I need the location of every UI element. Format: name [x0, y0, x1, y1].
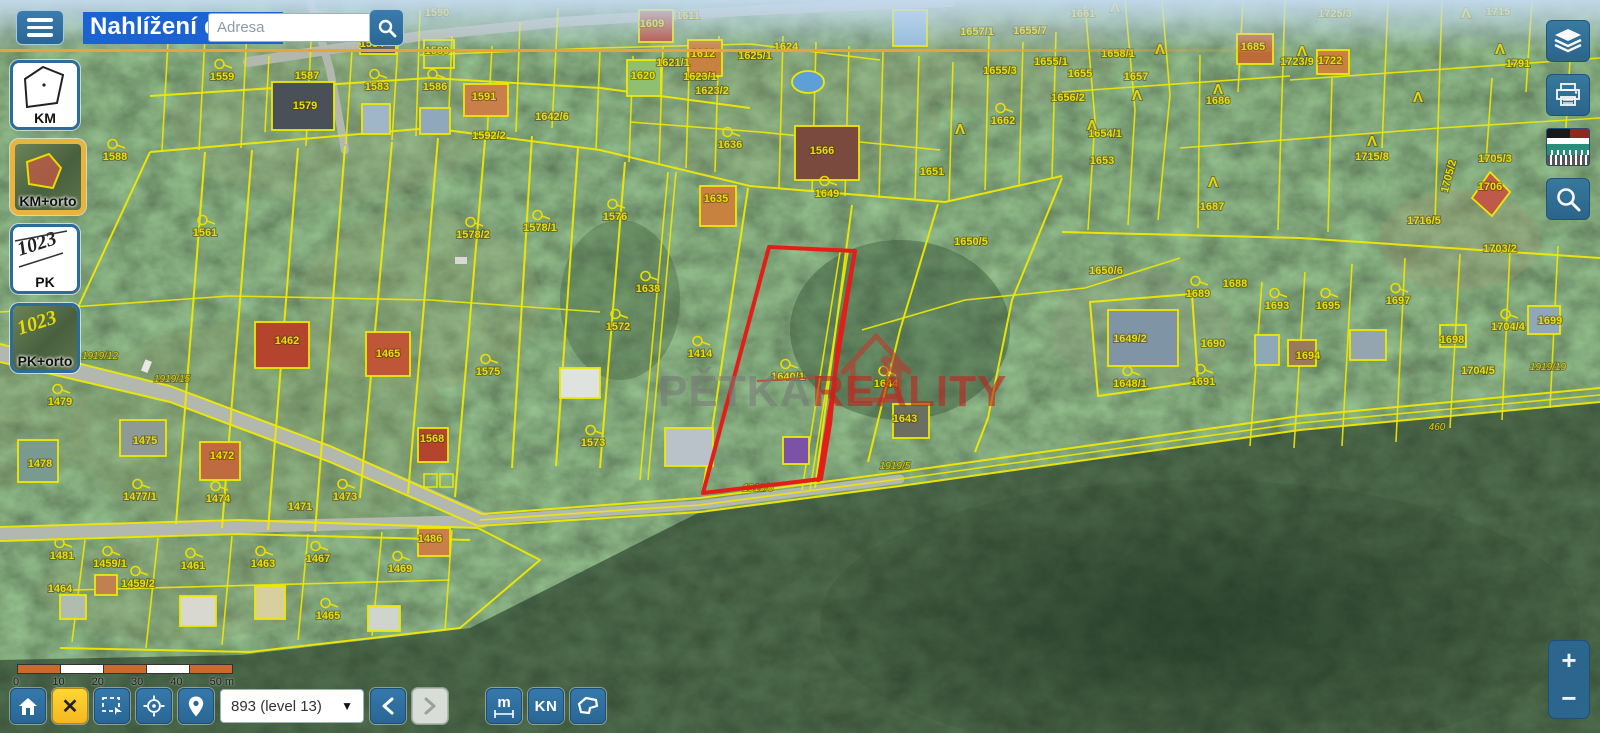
- svg-text:PĚTKAREALITY: PĚTKAREALITY: [658, 366, 1007, 416]
- parcel-label: 1576: [603, 211, 627, 223]
- pk-sketch-lines: [13, 227, 71, 273]
- zoom-level-select[interactable]: 893 (level 13) ▼: [220, 689, 364, 723]
- parcel-label: 1559: [210, 71, 234, 83]
- header-divider: [0, 49, 1600, 52]
- parcel-label: 1474: [206, 493, 231, 505]
- parcel-label: Λ: [1413, 89, 1423, 106]
- parcel-label: 1693: [1265, 300, 1289, 312]
- legend-stripe: [1547, 129, 1589, 138]
- map-canvas[interactable]: 1559158715791584158315901589158615911592…: [0, 0, 1600, 733]
- print-button[interactable]: [1546, 74, 1590, 116]
- parcel-label: 1656/2: [1051, 92, 1085, 104]
- polygon-area-icon: [577, 696, 599, 716]
- parcel-label: 1471: [288, 501, 312, 513]
- parcel-label: 1695: [1316, 300, 1340, 312]
- parcel-label: 1578/2: [456, 229, 490, 241]
- parcel-label: 1919/19: [1530, 362, 1567, 373]
- parcel-label: 1698: [1440, 334, 1464, 346]
- parcel-label: 1636: [718, 139, 742, 151]
- select-area-button[interactable]: [94, 688, 130, 724]
- parcel-label: 1650/5: [954, 236, 988, 248]
- sketch-area-button[interactable]: [570, 688, 606, 724]
- parcel-label: 1623/2: [695, 85, 729, 97]
- kn-info-button[interactable]: KN: [528, 688, 564, 724]
- home-icon: [18, 697, 38, 716]
- parcel-label: 460: [1429, 422, 1446, 433]
- search-icon: [377, 18, 397, 38]
- parcel-label: 1655: [1068, 68, 1092, 80]
- parcel-label: 1591: [472, 91, 496, 103]
- layer-button-pk[interactable]: 1023 PK: [10, 224, 80, 294]
- search-button[interactable]: [369, 9, 404, 46]
- layers-button[interactable]: [1546, 20, 1590, 62]
- map-pin-icon: [188, 696, 204, 717]
- gps-target-icon: [143, 695, 165, 717]
- parcel-label: 1704/4: [1491, 321, 1526, 333]
- parcel-label: 1642/6: [535, 111, 569, 123]
- parcel-label: 1706: [1478, 181, 1502, 193]
- parcel-label: 1566: [810, 145, 834, 157]
- parcel-label: 1459/1: [93, 558, 127, 570]
- parcel-label: 1465: [316, 610, 340, 622]
- parcel-label: Λ: [1208, 174, 1218, 191]
- locate-button[interactable]: [136, 688, 172, 724]
- parcel-label: Λ: [955, 121, 965, 138]
- legend-button[interactable]: [1546, 128, 1590, 166]
- parcel-label: 1573: [581, 437, 605, 449]
- parcel-label: 1473: [333, 491, 357, 503]
- parcel-label: 1697: [1386, 295, 1410, 307]
- zoom-level-value: 893 (level 13): [231, 698, 322, 715]
- clear-selection-button[interactable]: ✕: [52, 688, 88, 724]
- parcel-label: 1638: [636, 283, 660, 295]
- parcel-label: 1689: [1186, 288, 1210, 300]
- parcel-label: 1414: [688, 348, 713, 360]
- bottom-toolbar: ✕ 893 (level 13) ▼: [10, 688, 606, 724]
- parcel-label: 1464: [48, 583, 73, 595]
- layer-switcher: KM KM+orto 1023 PK 1023 PK+orto: [10, 60, 86, 373]
- parcel-label: 1691: [1191, 376, 1215, 388]
- parcel-label: 1469: [388, 563, 412, 575]
- parcel-label: 1655/1: [1034, 56, 1068, 68]
- parcel-label: 1649/2: [1113, 333, 1147, 345]
- parcel-label: 1623/1: [683, 71, 717, 83]
- cadastral-sketch-icon: [13, 63, 71, 109]
- map-search-button[interactable]: [1546, 178, 1590, 220]
- parcel-label: 1568: [420, 433, 444, 445]
- layer-button-pk-orto[interactable]: 1023 PK+orto: [10, 303, 80, 373]
- parcel-label: 1561: [193, 227, 217, 239]
- legend-stripe: [1547, 155, 1589, 165]
- parcel-label: 1705/3: [1478, 153, 1512, 165]
- parcel-label: 1620: [631, 70, 655, 82]
- parcel-label: 1657: [1124, 71, 1148, 83]
- parcel-label: 1715/8: [1355, 151, 1389, 163]
- scalebar-labels: 01020304050 m: [13, 676, 249, 688]
- parcel-label: 1463: [251, 558, 275, 570]
- parcel-label: 1459/2: [121, 578, 155, 590]
- parcel-label: 1486: [418, 533, 442, 545]
- selected-building: [783, 437, 809, 464]
- parcel-label: 1716/5: [1407, 215, 1441, 227]
- home-button[interactable]: [10, 688, 46, 724]
- parcel-label: 1462: [275, 335, 299, 347]
- parcel-label: 1687: [1200, 201, 1224, 213]
- address-search-input[interactable]: [208, 13, 382, 42]
- parcel-label: 1649: [815, 188, 839, 200]
- parcel-label: 1621/1: [656, 57, 690, 69]
- parcel-label: Λ: [1087, 117, 1097, 134]
- parcel-label: 1588: [103, 151, 127, 163]
- parcel-label: 1465: [376, 348, 400, 360]
- parcel-label: 1650/6: [1089, 265, 1123, 277]
- chevron-down-icon: ▼: [341, 699, 353, 713]
- menu-button[interactable]: [16, 10, 64, 45]
- layer-button-km-orto[interactable]: KM+orto: [10, 139, 86, 215]
- measure-button[interactable]: m: [486, 688, 522, 724]
- magnifier-icon: [1555, 186, 1581, 212]
- parcel-label: 1461: [181, 560, 205, 572]
- parcel-label: 1583: [365, 81, 389, 93]
- chevron-right-icon: [423, 697, 437, 715]
- parcel-label: 1722: [1318, 55, 1342, 67]
- select-rectangle-icon: [101, 696, 123, 716]
- zoom-in-button[interactable]: +: [1549, 641, 1589, 680]
- parcel-label: 1467: [306, 553, 330, 565]
- parcel-label: 1481: [50, 550, 74, 562]
- parcel-label: 1635: [704, 193, 728, 205]
- parcel-label: 1699: [1538, 315, 1562, 327]
- parcel-label: 1919/15: [154, 374, 191, 385]
- parcel-label: 1479: [48, 396, 72, 408]
- parcel-label: 1579: [293, 100, 317, 112]
- parcel-label: 1651: [920, 166, 944, 178]
- parcel-label: 1655/3: [983, 65, 1017, 77]
- parcel-label: Λ: [1213, 81, 1223, 98]
- parcel-label: 1688: [1223, 278, 1247, 290]
- parcel-label: 1919/5: [880, 461, 911, 472]
- parcel-label: 1653: [1090, 155, 1114, 167]
- parcel-label: 1477/1: [123, 491, 157, 503]
- parcel-label: 1703/2: [1483, 243, 1517, 255]
- parcel-label: 1578/1: [523, 222, 557, 234]
- parcel-label: 1648/1: [1113, 378, 1147, 390]
- parcel-label: Λ: [1132, 87, 1142, 104]
- parcel-label: 1704/5: [1461, 365, 1495, 377]
- parcel-label: 1662: [991, 115, 1015, 127]
- parcel-label: 1472: [210, 450, 234, 462]
- zoom-controls: + −: [1548, 640, 1590, 719]
- parcel-label: 1690: [1201, 338, 1225, 350]
- parcel-label: 1478: [28, 458, 52, 470]
- parcel-label: 1592/2: [472, 130, 506, 142]
- parcel-label: 1572: [606, 321, 630, 333]
- history-back-button[interactable]: [370, 688, 406, 724]
- parcel-label: 1575: [476, 366, 500, 378]
- measure-label: m: [497, 695, 510, 710]
- parcel-label: Λ: [1367, 133, 1377, 150]
- parcel-label: 1791: [1506, 58, 1530, 70]
- history-forward-button[interactable]: [412, 688, 448, 724]
- chevron-left-icon: [381, 697, 395, 715]
- layer-button-km[interactable]: KM: [10, 60, 80, 130]
- marker-button[interactable]: [178, 688, 214, 724]
- parcel-label: 1586: [423, 81, 447, 93]
- zoom-out-button[interactable]: −: [1549, 680, 1589, 719]
- print-icon: [1555, 83, 1581, 107]
- parcel-label: 1919/12: [82, 351, 119, 362]
- parcel-label: 1587: [295, 70, 319, 82]
- map-tools: [1546, 20, 1590, 220]
- parcel-label: 1694: [1296, 350, 1321, 362]
- parcel-label: 1475: [133, 435, 157, 447]
- layers-icon: [1554, 28, 1582, 54]
- menu-icon: [27, 18, 53, 22]
- scalebar: [17, 664, 232, 674]
- measure-ruler-icon: [493, 710, 515, 718]
